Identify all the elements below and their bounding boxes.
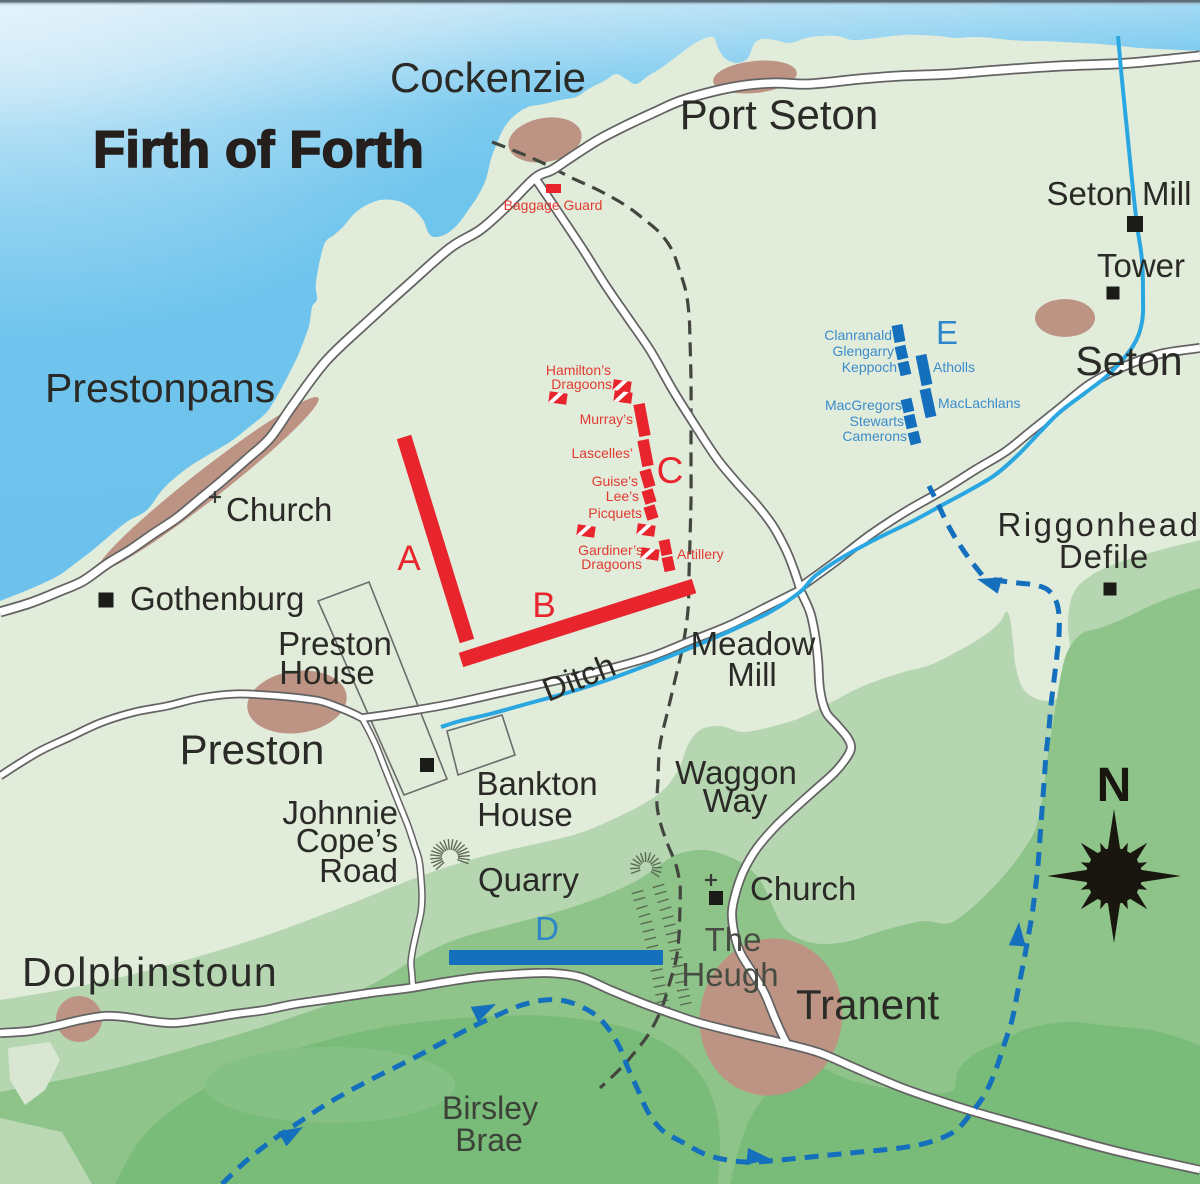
svg-text:Picquets: Picquets (588, 505, 642, 521)
svg-text:B: B (532, 586, 555, 625)
svg-text:Cockenzie: Cockenzie (390, 54, 586, 101)
svg-text:Baggage Guard: Baggage Guard (504, 197, 603, 213)
svg-text:Way: Way (703, 782, 768, 819)
svg-text:Port Seton: Port Seton (680, 91, 878, 138)
svg-text:Murray’s: Murray’s (580, 411, 633, 427)
svg-text:D: D (535, 910, 559, 947)
svg-text:Lee’s: Lee’s (606, 488, 639, 504)
svg-text:House: House (279, 654, 374, 691)
svg-text:The: The (705, 921, 762, 958)
svg-text:Prestonpans: Prestonpans (45, 365, 275, 411)
svg-text:House: House (477, 796, 572, 833)
svg-text:Seton Mill: Seton Mill (1047, 175, 1192, 212)
svg-text:Preston: Preston (180, 726, 325, 773)
svg-text:Dragoons: Dragoons (581, 556, 642, 572)
svg-text:Church: Church (750, 870, 856, 907)
svg-text:Keppoch: Keppoch (842, 359, 897, 375)
svg-text:Tranent: Tranent (796, 981, 940, 1028)
svg-text:Road: Road (319, 852, 398, 889)
svg-text:Gothenburg: Gothenburg (130, 580, 304, 617)
svg-text:E: E (936, 314, 958, 351)
svg-text:Camerons: Camerons (842, 428, 907, 444)
svg-text:Church: Church (226, 491, 332, 528)
svg-text:Firth of Forth: Firth of Forth (93, 121, 424, 179)
svg-text:Stewarts: Stewarts (850, 413, 904, 429)
svg-text:MacLachlans: MacLachlans (938, 395, 1021, 411)
svg-text:A: A (397, 539, 421, 578)
svg-text:Quarry: Quarry (478, 861, 579, 898)
svg-text:Glengarry: Glengarry (833, 343, 894, 359)
svg-text:Dolphinstoun: Dolphinstoun (22, 949, 278, 995)
svg-text:N: N (1097, 759, 1132, 812)
svg-text:Heugh: Heugh (681, 956, 778, 993)
svg-text:Artillery: Artillery (677, 546, 724, 562)
svg-text:Lascelles’: Lascelles’ (572, 445, 633, 461)
svg-text:Clanranald: Clanranald (824, 327, 892, 343)
svg-text:Atholls: Atholls (933, 359, 975, 375)
svg-text:Tower: Tower (1097, 247, 1185, 284)
svg-text:Dragoons: Dragoons (551, 376, 612, 392)
svg-text:Guise’s: Guise’s (592, 473, 638, 489)
svg-text:Birsley: Birsley (442, 1090, 538, 1126)
svg-text:Mill: Mill (727, 656, 776, 693)
svg-text:MacGregors: MacGregors (825, 397, 902, 413)
svg-text:Defile: Defile (1059, 538, 1149, 575)
svg-text:Seton: Seton (1075, 338, 1182, 384)
svg-text:C: C (657, 450, 684, 491)
svg-text:Brae: Brae (455, 1122, 523, 1158)
